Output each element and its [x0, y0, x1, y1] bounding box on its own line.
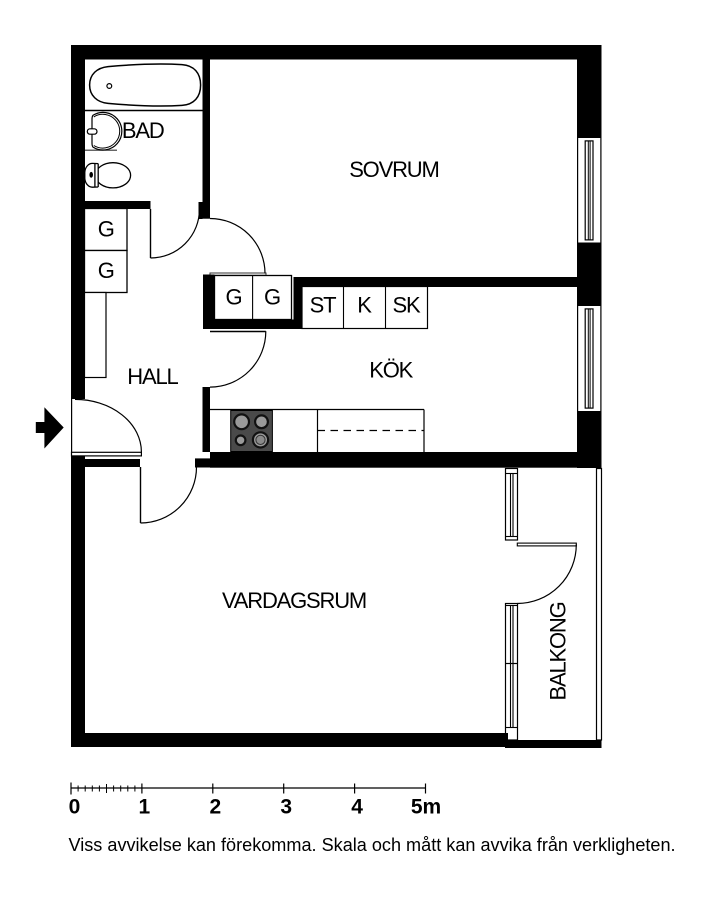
svg-text:G: G	[98, 217, 114, 242]
svg-text:2: 2	[209, 796, 221, 819]
svg-text:HALL: HALL	[127, 364, 178, 389]
svg-text:G: G	[225, 284, 241, 309]
svg-text:BALKONG: BALKONG	[546, 602, 571, 700]
svg-text:SOVRUM: SOVRUM	[349, 157, 438, 182]
svg-text:4: 4	[351, 796, 363, 819]
svg-text:Viss avvikelse kan förekomma.: Viss avvikelse kan förekomma. Skala och …	[69, 835, 676, 855]
svg-text:VARDAGSRUM: VARDAGSRUM	[222, 588, 366, 613]
svg-text:1: 1	[139, 796, 151, 819]
svg-text:SK: SK	[393, 293, 421, 318]
svg-text:G: G	[98, 258, 114, 283]
svg-text:KÖK: KÖK	[369, 357, 413, 382]
svg-text:K: K	[357, 293, 372, 318]
svg-text:BAD: BAD	[122, 118, 164, 143]
svg-text:5m: 5m	[411, 796, 441, 819]
svg-text:3: 3	[280, 796, 292, 819]
svg-text:0: 0	[69, 796, 81, 819]
svg-text:G: G	[264, 284, 280, 309]
svg-text:ST: ST	[310, 293, 336, 318]
